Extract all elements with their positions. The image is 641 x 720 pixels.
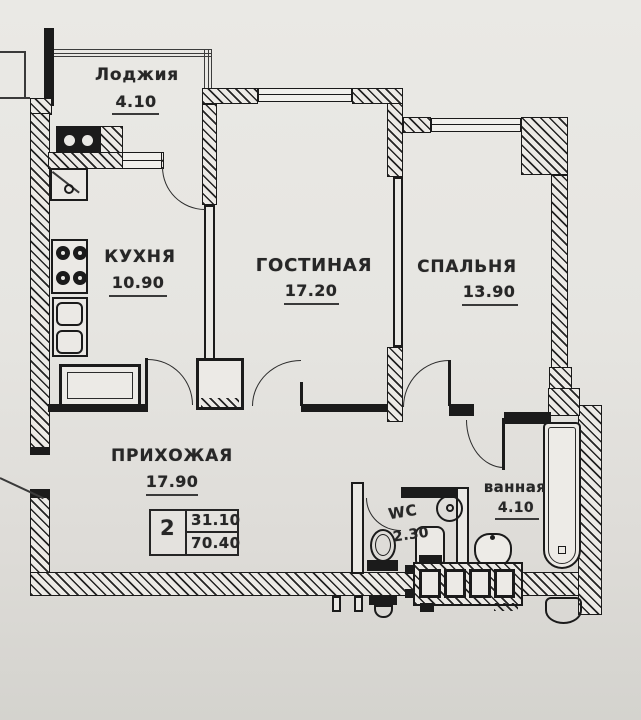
bathtub-inner: [548, 427, 576, 564]
washbasin-drain-icon: [446, 504, 454, 512]
room-label-bath: ванная: [465, 480, 565, 495]
loggia-glazing: [44, 49, 212, 57]
wall-step: [548, 388, 580, 416]
room-area-hall: 17.90: [132, 474, 212, 490]
burner-icon: [56, 271, 70, 285]
mirrored-detail: [420, 603, 434, 612]
mirrored-toilet-tank: [369, 596, 397, 605]
room-area-living: 17.20: [271, 283, 351, 299]
wall-pier: [387, 347, 403, 422]
burner-icon: [64, 135, 75, 146]
bedroom-door-leaf: [448, 360, 451, 406]
underline: [495, 518, 539, 520]
vent-duct: [469, 569, 491, 598]
washing-machine-detail: [419, 555, 442, 562]
counter-inner: [67, 372, 133, 399]
neighbor-line: [0, 97, 30, 99]
wall-pier-hatch: [201, 398, 239, 407]
wall: [44, 28, 54, 106]
neighbor-line: [0, 51, 26, 53]
wall-cap: [30, 447, 50, 455]
wall: [100, 126, 123, 155]
living-door-leaf: [300, 382, 303, 406]
bedroom-door-arc: [403, 360, 449, 407]
balcony-door-arc: [162, 167, 205, 210]
room-label-bedroom: СПАЛЬНЯ: [387, 259, 547, 276]
wall-wc-left: [351, 482, 364, 574]
burner-icon: [82, 135, 93, 146]
underline: [284, 303, 339, 305]
vent-duct: [444, 569, 466, 598]
room-area-bath: 4.10: [476, 501, 556, 515]
stamp-divider: [187, 531, 239, 533]
room-area-bedroom: 13.90: [449, 284, 529, 300]
underline: [146, 494, 198, 496]
wall-bedroom-right: [551, 175, 568, 370]
room-label-hall: ПРИХОЖАЯ: [92, 448, 252, 465]
stamp-total-area: 70.40: [191, 536, 239, 551]
wall-stub: [332, 596, 341, 612]
wall-corner: [202, 88, 258, 104]
sink-basin-icon: [56, 302, 83, 326]
wall-divider: [204, 205, 215, 360]
mirrored-washbasin-icon: [545, 597, 582, 624]
sink-basin-icon: [56, 330, 83, 354]
vent-duct: [494, 569, 515, 598]
wall: [449, 404, 474, 416]
room-area-kitchen: 10.90: [98, 275, 178, 291]
cooktop-2-burner-icon: [56, 126, 100, 155]
vent-duct: [419, 569, 441, 598]
stamp-living-area: 31.10: [191, 513, 239, 528]
wall-corridor: [301, 404, 388, 412]
mirrored-detail: [494, 603, 518, 611]
kitchen-door-arc: [148, 359, 193, 405]
wall: [352, 88, 403, 104]
faucet-icon: [64, 184, 74, 194]
shaft-tab: [405, 565, 414, 574]
bathtub-drain-icon: [558, 546, 566, 554]
toilet-tank: [367, 560, 398, 571]
room-label-loggia: Лоджия: [77, 67, 197, 84]
neighbor-line: [24, 51, 26, 99]
room-area-loggia: 4.10: [96, 94, 176, 110]
wall: [403, 117, 431, 133]
burner-icon: [73, 271, 87, 285]
wall-stub: [354, 596, 363, 612]
underline: [462, 304, 518, 306]
wall-corner: [521, 117, 568, 175]
kitchen-loggia-window: [122, 152, 162, 169]
room-label-living: ГОСТИНАЯ: [234, 257, 394, 275]
underline: [112, 113, 159, 115]
living-window: [258, 88, 352, 102]
stamp-rooms-count: 2: [149, 518, 186, 539]
bedroom-window: [431, 118, 521, 132]
burner-icon: [56, 246, 70, 260]
floor-plan: 2 31.10 70.40 Лоджия 4.10 КУХНЯ 10.90 ГО…: [0, 0, 641, 720]
bathroom-door-arc: [466, 420, 504, 468]
bathroom-door-leaf: [502, 418, 505, 470]
underline: [109, 295, 167, 297]
wall: [387, 103, 403, 177]
mirrored-toilet-icon: [374, 605, 393, 618]
living-door-arc: [252, 360, 301, 406]
wall-right: [578, 405, 602, 615]
wall-left: [30, 113, 50, 455]
faucet-icon: [490, 535, 495, 540]
shaft-tab: [405, 589, 414, 598]
room-label-kitchen: КУХНЯ: [80, 249, 200, 266]
